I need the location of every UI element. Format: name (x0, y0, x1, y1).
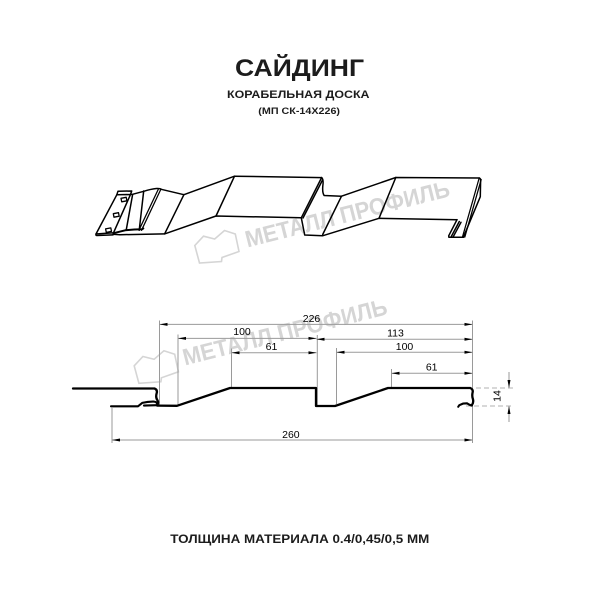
svg-text:260: 260 (282, 429, 300, 441)
svg-text:(МП СК-14Х226): (МП СК-14Х226) (258, 106, 340, 116)
svg-text:100: 100 (396, 341, 414, 353)
svg-text:КОРАБЕЛЬНАЯ ДОСКА: КОРАБЕЛЬНАЯ ДОСКА (227, 89, 370, 101)
svg-text:61: 61 (426, 362, 438, 374)
svg-text:113: 113 (387, 328, 404, 340)
svg-text:100: 100 (233, 326, 251, 338)
svg-text:САЙДИНГ: САЙДИНГ (235, 54, 364, 82)
svg-text:226: 226 (303, 313, 321, 325)
svg-text:61: 61 (266, 341, 278, 353)
svg-text:ТОЛЩИНА МАТЕРИАЛА 0.4/0,45/0,5: ТОЛЩИНА МАТЕРИАЛА 0.4/0,45/0,5 ММ (170, 532, 429, 546)
svg-text:14: 14 (492, 390, 504, 402)
